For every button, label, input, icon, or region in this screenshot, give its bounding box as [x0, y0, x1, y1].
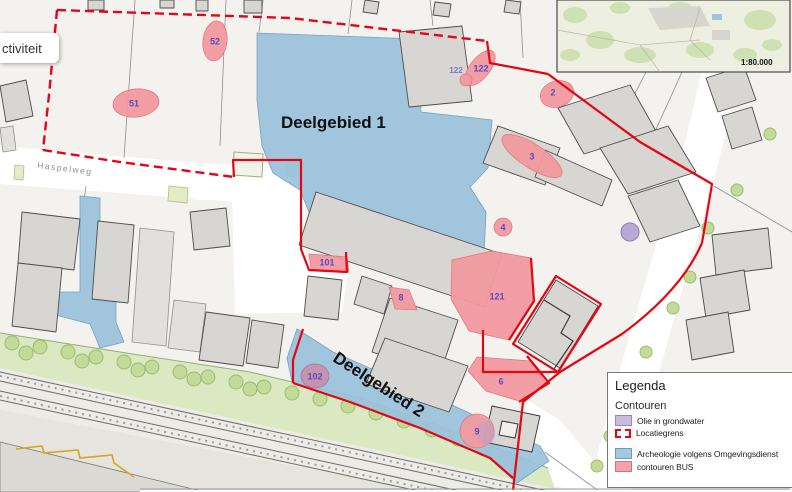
marker-52: 52	[210, 38, 220, 47]
oil-groundwater-circle	[621, 223, 639, 241]
marker-102: 102	[307, 373, 322, 382]
marker-9: 9	[474, 428, 479, 437]
bus-contour-122b	[460, 74, 472, 86]
inset-scale-label: 1:80.000	[741, 58, 773, 67]
bus-swatch-icon	[615, 461, 632, 472]
archeologie-swatch-icon	[615, 448, 632, 459]
legend-title: Legenda	[615, 378, 792, 393]
legend-panel: Legenda Contouren Olie in grondwater Loc…	[607, 372, 792, 488]
marker-4: 4	[500, 224, 505, 233]
olie-swatch-icon	[615, 415, 632, 426]
legend-item-archeologie: Archeologie volgens Omgevingsdienst	[615, 448, 792, 459]
layer-tooltip[interactable]: ctiviteit	[0, 33, 59, 63]
marker-101: 101	[319, 259, 334, 268]
map-canvas: ctiviteit Deelgebied 1 Deelgebied 2 Hasp…	[0, 0, 792, 492]
legend-item-locatiegrens: Locatiegrens	[615, 428, 792, 438]
marker-122b: 122	[473, 65, 488, 74]
legend-item-label: Locatiegrens	[636, 428, 683, 438]
legend-group-title: Contouren	[615, 400, 792, 412]
locatiegrens-swatch-icon	[615, 429, 631, 438]
marker-122a: 122	[449, 67, 462, 75]
marker-3: 3	[529, 153, 534, 162]
legend-item-label: Archeologie volgens Omgevingsdienst	[637, 449, 778, 459]
legend-item-label: contouren BUS	[637, 462, 693, 472]
deelgebied1-label: Deelgebied 1	[281, 113, 386, 133]
marker-6: 6	[498, 378, 503, 387]
tooltip-text: ctiviteit	[2, 41, 42, 56]
legend-item-label: Olie in grondwater	[637, 416, 704, 426]
marker-51: 51	[129, 100, 139, 109]
legend-item-bus: contouren BUS	[615, 461, 792, 472]
marker-121: 121	[489, 293, 504, 302]
legend-item-olie: Olie in grondwater	[615, 415, 792, 426]
marker-8: 8	[398, 294, 403, 303]
marker-2: 2	[550, 89, 555, 98]
